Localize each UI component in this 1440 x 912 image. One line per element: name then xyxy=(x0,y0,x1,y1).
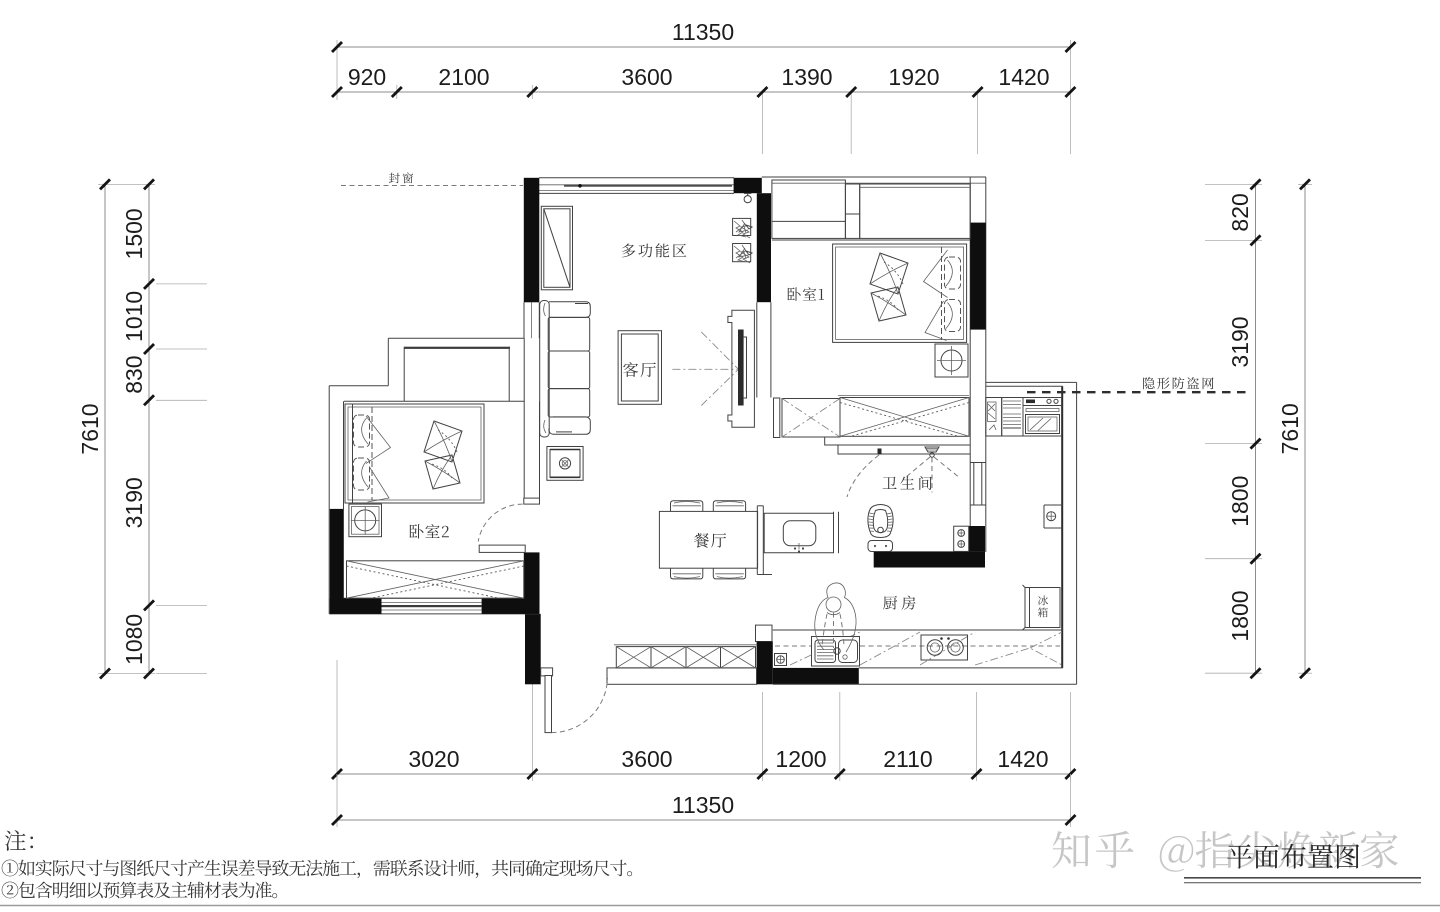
svg-text:1080: 1080 xyxy=(121,614,147,665)
svg-text:11350: 11350 xyxy=(672,792,734,818)
svg-text:2100: 2100 xyxy=(438,64,489,90)
svg-text:3600: 3600 xyxy=(621,64,672,90)
svg-text:1920: 1920 xyxy=(888,64,939,90)
svg-text:11350: 11350 xyxy=(672,19,734,45)
svg-text:3190: 3190 xyxy=(1227,316,1253,367)
svg-text:1420: 1420 xyxy=(998,64,1049,90)
svg-text:1200: 1200 xyxy=(775,746,826,772)
svg-text:1390: 1390 xyxy=(781,64,832,90)
svg-text:3020: 3020 xyxy=(408,746,459,772)
svg-text:1010: 1010 xyxy=(121,291,147,342)
svg-text:3600: 3600 xyxy=(621,746,672,772)
svg-text:2110: 2110 xyxy=(883,746,932,772)
svg-text:7610: 7610 xyxy=(1277,403,1303,454)
svg-text:820: 820 xyxy=(1227,193,1253,231)
svg-text:830: 830 xyxy=(121,355,147,393)
svg-text:1500: 1500 xyxy=(121,208,147,259)
svg-text:1420: 1420 xyxy=(997,746,1048,772)
svg-text:1800: 1800 xyxy=(1227,476,1253,527)
svg-text:7610: 7610 xyxy=(77,403,103,454)
svg-text:3190: 3190 xyxy=(121,477,147,528)
svg-text:1800: 1800 xyxy=(1227,590,1253,641)
svg-text:920: 920 xyxy=(348,64,386,90)
